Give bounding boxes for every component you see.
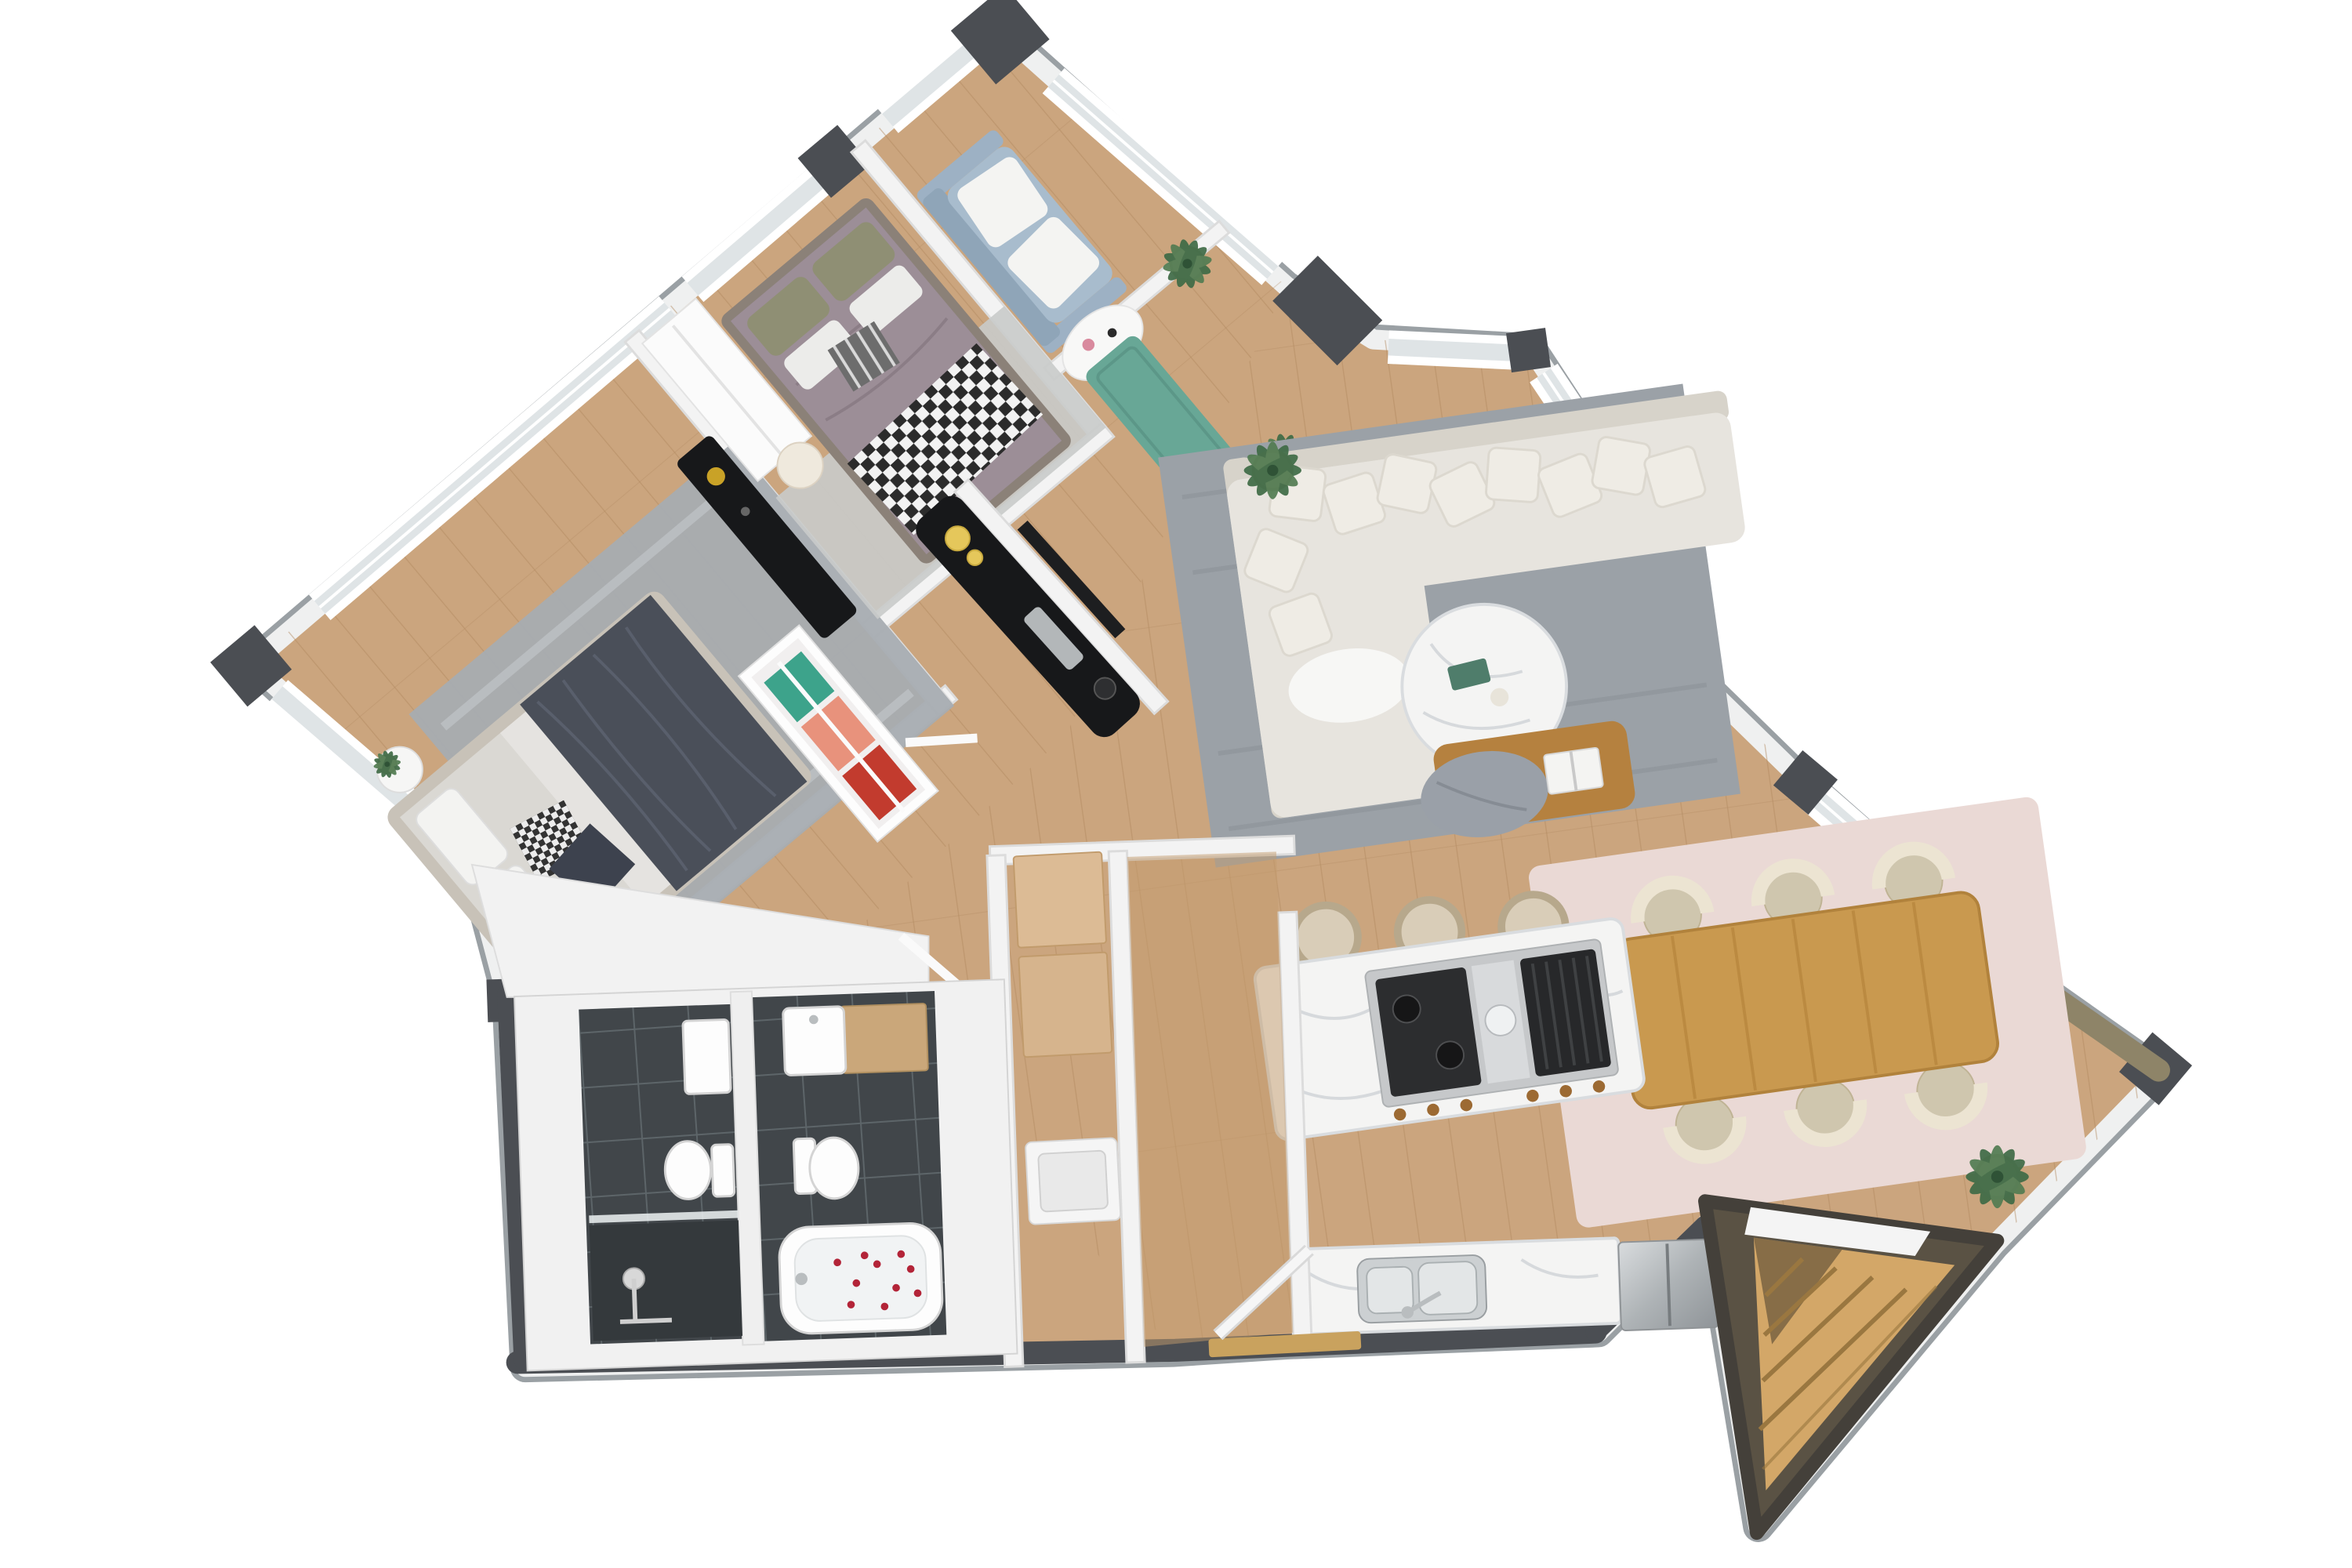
- storage-cabinet: [1018, 953, 1112, 1058]
- bathtub-basin: [794, 1235, 928, 1322]
- toilet-bowl: [664, 1141, 712, 1200]
- shower-valve: [620, 1320, 672, 1322]
- floorplan-stage: [0, 0, 2352, 1568]
- gas-grates: [1375, 967, 1482, 1097]
- entry-floor: [1127, 851, 1294, 1347]
- bathroom-block: [514, 979, 1018, 1370]
- fridge-group: [1618, 1239, 1719, 1330]
- table-decor: [1490, 688, 1508, 706]
- washer-lid: [1038, 1150, 1108, 1211]
- storage-cabinet: [1014, 852, 1107, 948]
- shower-riser: [633, 1279, 635, 1321]
- wood-vanity: [840, 1004, 928, 1073]
- glass-screen: [589, 1214, 738, 1220]
- window-living-top: [1388, 347, 1519, 354]
- toilet-tank: [711, 1144, 734, 1196]
- room-living: [1158, 384, 1776, 868]
- room-stairwell: [1705, 1201, 1998, 1533]
- floorplan-svg: [0, 0, 2352, 1568]
- shower-floor: [590, 1220, 742, 1341]
- basin-unit: [683, 1019, 731, 1094]
- kitchen-counter-group: [1293, 1238, 1621, 1334]
- room-utility: [1011, 852, 1121, 1225]
- sink-basin-large: [1418, 1261, 1478, 1316]
- toilet-bowl: [808, 1137, 859, 1200]
